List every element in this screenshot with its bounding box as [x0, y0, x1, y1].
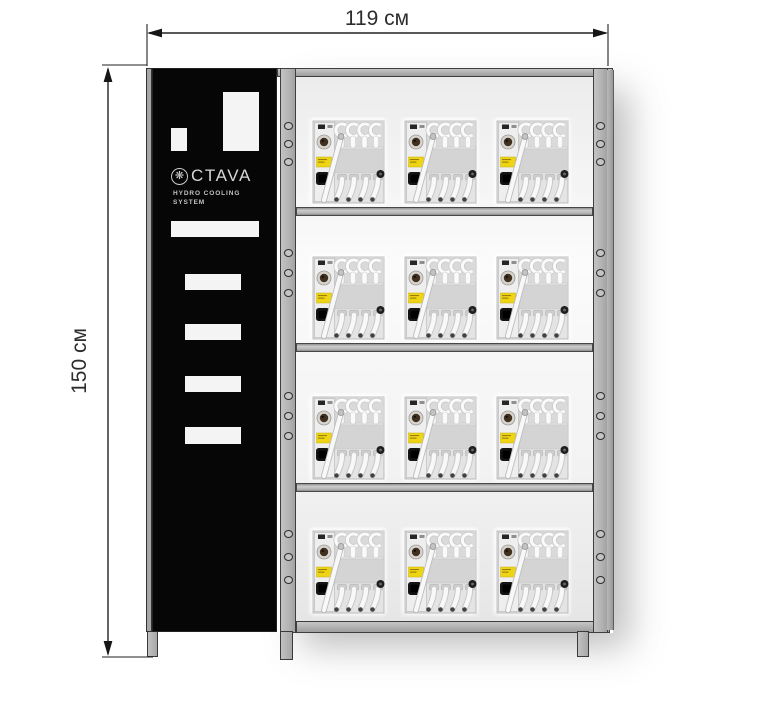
dimension-overlay: 119 см 150 см — [0, 0, 757, 723]
diagram-canvas: 119 см 150 см — [0, 0, 757, 723]
width-dimension-label: 119 см — [345, 7, 409, 30]
height-dimension-label: 150 см — [68, 328, 91, 394]
height-dimension: 150 см — [68, 65, 153, 657]
width-dimension: 119 см — [147, 7, 608, 66]
